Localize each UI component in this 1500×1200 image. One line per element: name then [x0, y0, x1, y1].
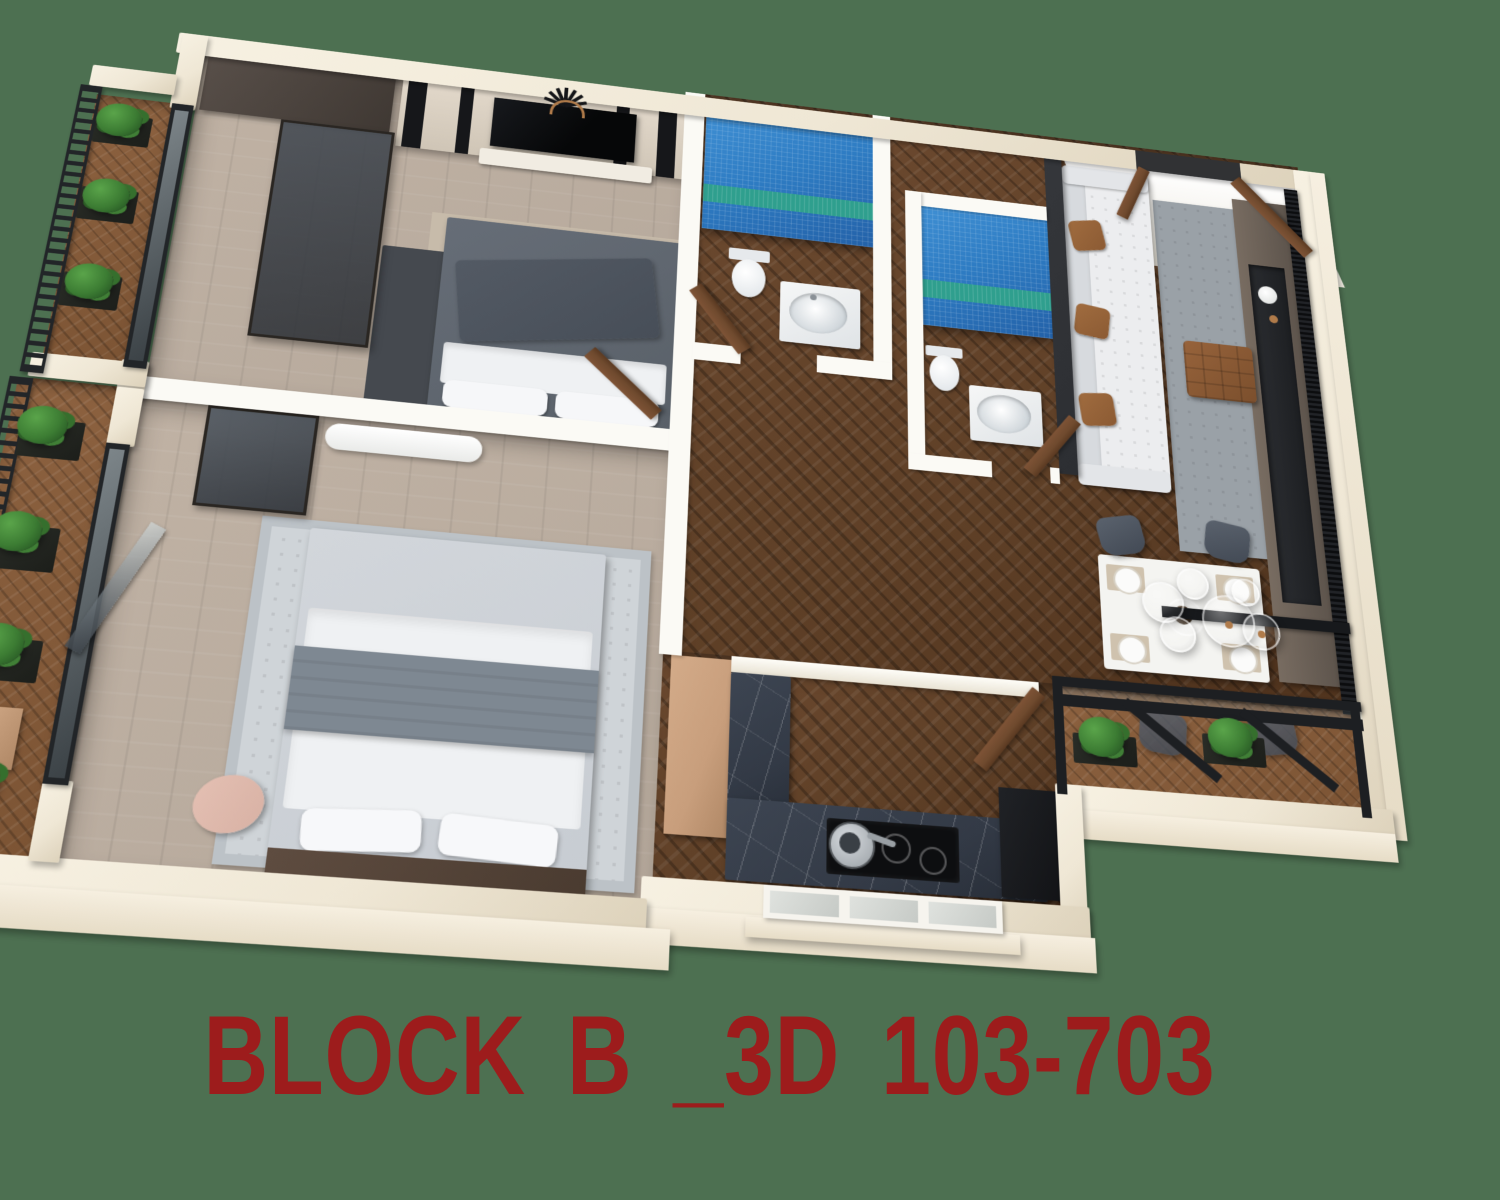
bedroom2-mirror [192, 405, 319, 516]
tall-tan-cabinet [663, 655, 731, 838]
floor-plan-scene [0, 17, 1461, 1059]
caption: BLOCK B _3D 103-703 [0, 992, 1420, 1121]
bedroom2-bed [264, 528, 606, 899]
caption-text: BLOCK B _3D 103-703 [204, 992, 1216, 1121]
apartment-plan [0, 17, 1461, 1059]
kitchen-window-pane [770, 890, 839, 917]
sofa-brown-cushion [1078, 393, 1118, 426]
bed2-pillow [299, 808, 422, 853]
kitchen-window-pane [928, 902, 996, 929]
kitchen-window-pane [850, 896, 918, 923]
bathroom1-east-wall [873, 115, 893, 380]
tv-wall-black-strip [656, 110, 678, 179]
refrigerator [998, 787, 1062, 901]
ottoman [1183, 340, 1257, 404]
pendant-bulb [1258, 630, 1266, 638]
bed1-gray-throw [455, 258, 660, 341]
frying-pan-contents [839, 831, 860, 854]
pendant-bulb [1225, 621, 1233, 629]
bathroom2-blue-wall [921, 206, 1053, 339]
balconyA-top-wall [89, 65, 178, 96]
bathroom1-faucet [810, 294, 817, 300]
bathroom2-south-wall [1050, 467, 1060, 484]
